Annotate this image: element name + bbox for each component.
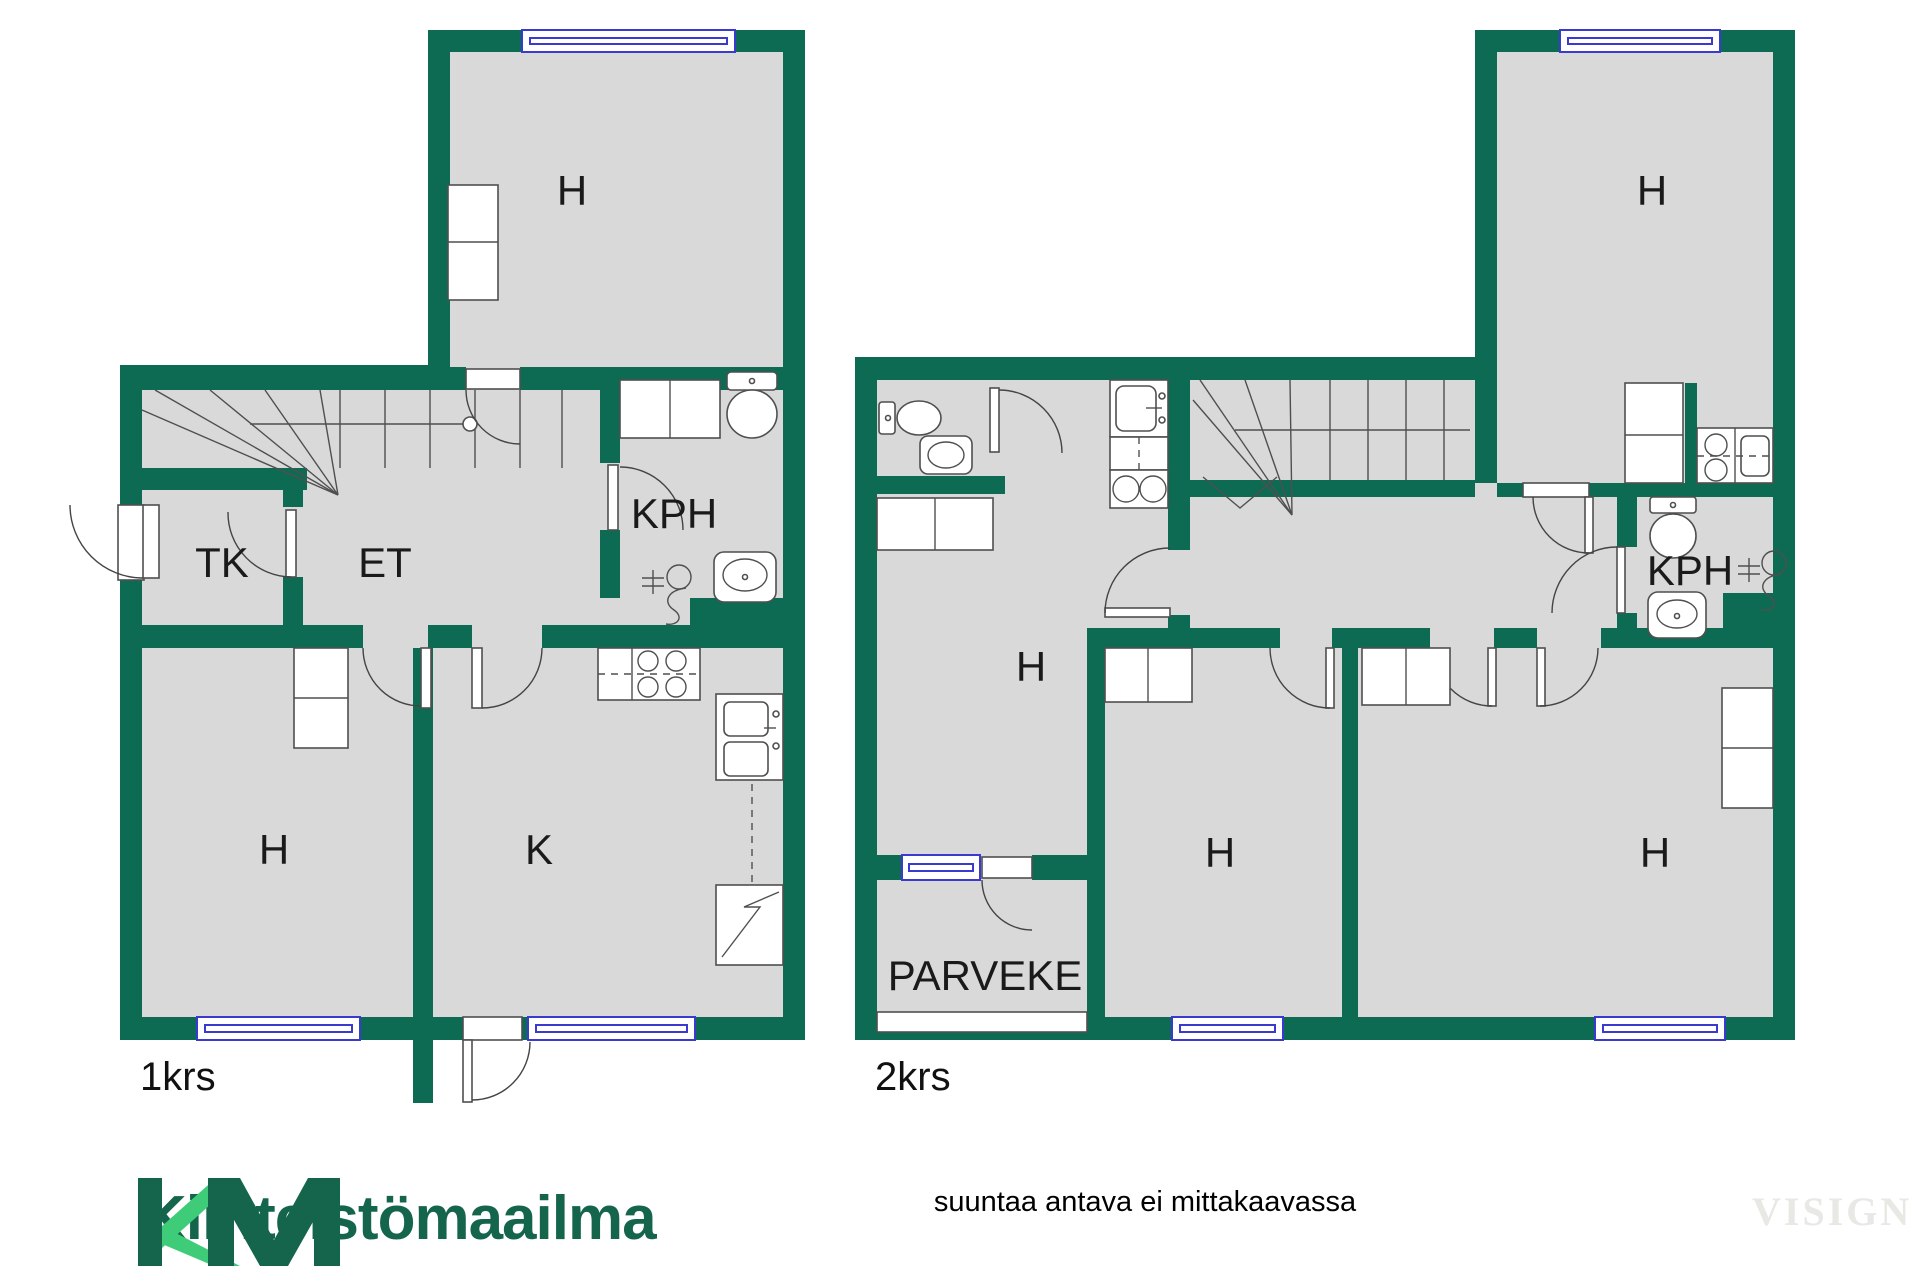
entry-door xyxy=(70,505,159,580)
sink-fixture xyxy=(714,552,776,602)
bathroom-cabinet-fixture xyxy=(620,380,720,438)
wardrobe-fixture xyxy=(294,648,348,748)
room-label-bedroom-top-right: H xyxy=(1637,167,1667,214)
window xyxy=(197,1017,360,1040)
wardrobe-fixture xyxy=(877,498,993,550)
exterior-door-kitchen xyxy=(463,1017,530,1102)
floorplan-drawing: H TK ET KPH H K 1krs xyxy=(0,0,1920,1280)
refrigerator-fixture xyxy=(1625,383,1683,483)
floorplan-2krs: H H H H KPH PARVEKE 2krs xyxy=(855,30,1795,1099)
brand-footer: Kiinteistömaailma xyxy=(128,1168,656,1268)
floor-label-2krs: 2krs xyxy=(875,1055,951,1099)
room-label-room-left: H xyxy=(1016,643,1046,690)
room-label-hall: ET xyxy=(358,539,412,586)
wardrobe-fixture xyxy=(1105,648,1192,702)
room-label-closet: TK xyxy=(195,539,249,586)
balcony-railing xyxy=(877,1012,1087,1032)
wardrobe-fixture xyxy=(1362,648,1450,705)
kitchen-sink-fixture xyxy=(1110,380,1168,470)
stove-fixture xyxy=(598,648,700,700)
visign-watermark: VISIGN xyxy=(1752,1188,1912,1235)
wardrobe-fixture xyxy=(448,185,498,300)
room-label-bathroom-floor2: KPH xyxy=(1647,547,1733,594)
disclaimer-text: suuntaa antava ei mittakaavassa xyxy=(930,1186,1360,1219)
appliance-reservation-fixture xyxy=(716,885,783,965)
window xyxy=(1560,30,1720,52)
room-label-kitchen: K xyxy=(525,826,553,873)
wardrobe-fixture xyxy=(1722,688,1773,808)
room-label-bedroom-top: H xyxy=(557,167,587,214)
balcony-window xyxy=(902,855,980,880)
toilet-fixture xyxy=(879,401,941,435)
sink-fixture xyxy=(1648,592,1706,638)
window xyxy=(522,30,735,52)
floor-label-1krs: 1krs xyxy=(140,1055,216,1099)
room-label-bathroom-floor1: KPH xyxy=(631,490,717,537)
room-label-room-right: H xyxy=(1640,829,1670,876)
km-logo-icon xyxy=(128,1168,378,1268)
room-label-bedroom-floor1: H xyxy=(259,826,289,873)
toilet-fixture xyxy=(727,372,777,438)
window xyxy=(1595,1017,1725,1040)
room-label-room-middle: H xyxy=(1205,829,1235,876)
stove-fixture xyxy=(1110,470,1168,508)
window xyxy=(1172,1017,1283,1040)
room-label-balcony: PARVEKE xyxy=(888,952,1083,999)
window xyxy=(528,1017,695,1040)
floorplan-page: H TK ET KPH H K 1krs xyxy=(0,0,1920,1280)
kitchenette-fixture xyxy=(1697,428,1773,483)
sink-fixture xyxy=(920,436,972,474)
floorplan-1krs: H TK ET KPH H K 1krs xyxy=(70,30,805,1103)
